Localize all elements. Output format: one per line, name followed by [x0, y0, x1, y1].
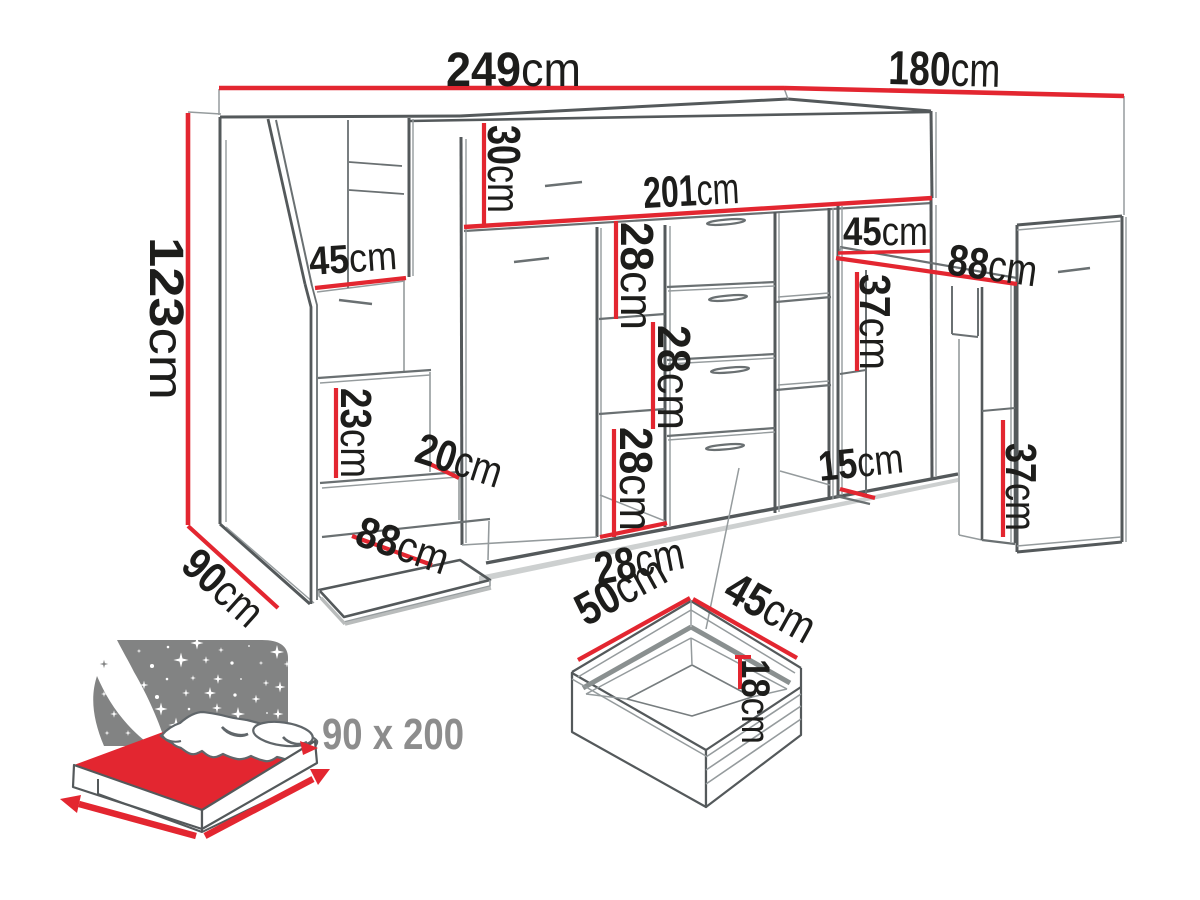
svg-text:28cm: 28cm [610, 427, 662, 531]
svg-text:45cm: 45cm [843, 210, 928, 254]
svg-text:45cm: 45cm [308, 234, 399, 284]
svg-text:18cm: 18cm [733, 659, 777, 744]
svg-text:37cm: 37cm [996, 443, 1045, 531]
svg-text:23cm: 23cm [331, 388, 380, 478]
svg-text:123cm: 123cm [139, 237, 192, 400]
svg-text:28cm: 28cm [611, 222, 663, 330]
svg-text:90 x 200: 90 x 200 [322, 710, 464, 759]
svg-text:180cm: 180cm [888, 42, 1001, 98]
svg-text:28cm: 28cm [648, 325, 700, 430]
svg-text:249cm: 249cm [446, 44, 581, 97]
svg-text:15cm: 15cm [816, 434, 905, 490]
svg-text:30cm: 30cm [478, 125, 530, 213]
svg-text:37cm: 37cm [850, 274, 899, 370]
svg-text:201cm: 201cm [642, 164, 740, 218]
